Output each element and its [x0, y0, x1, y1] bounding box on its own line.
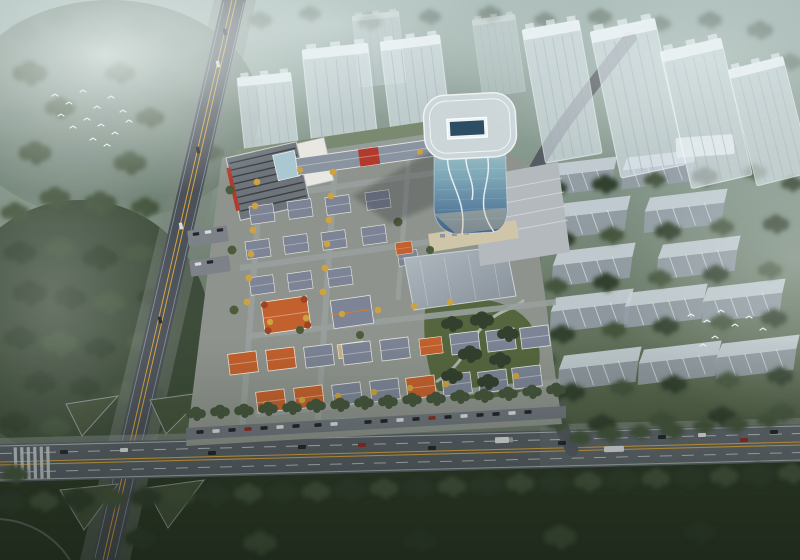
aerial-rendering — [0, 0, 800, 560]
red-roof-shop — [358, 147, 380, 167]
dusk-vignette — [0, 340, 800, 560]
chateau-orange — [260, 295, 311, 334]
chateau-grey — [330, 295, 374, 328]
aerial-rendering-stage — [0, 0, 800, 560]
